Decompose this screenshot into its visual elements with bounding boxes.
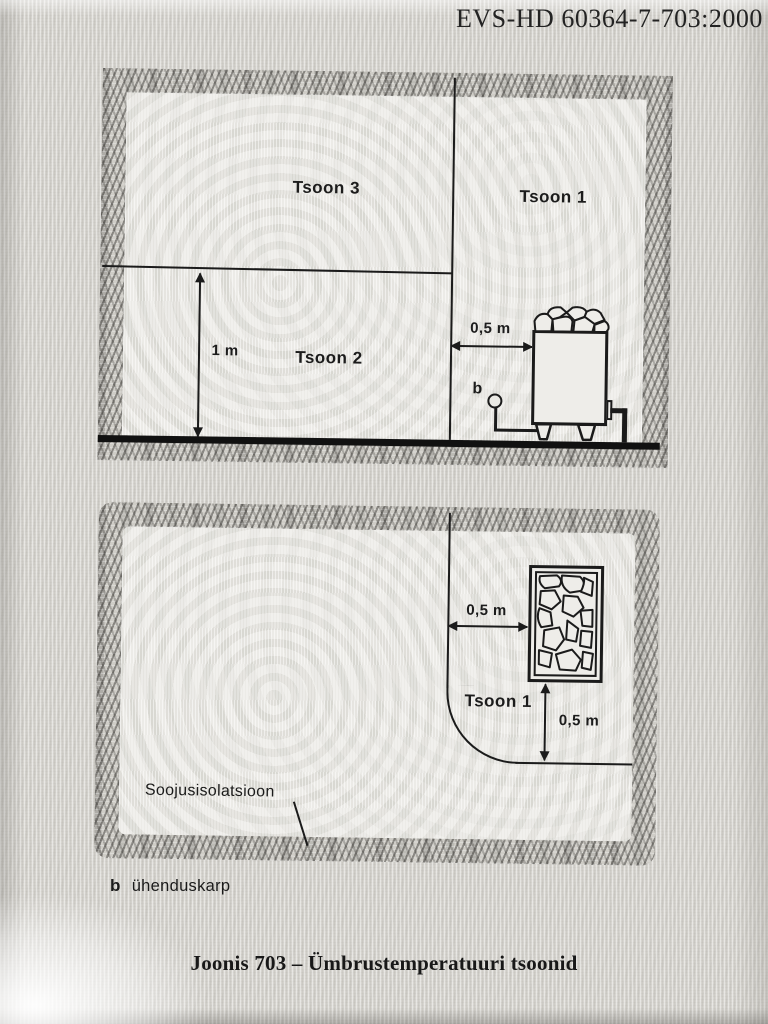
zone3-label: Tsoon 3	[292, 178, 360, 199]
zone2-label: Tsoon 2	[295, 348, 363, 369]
height-dimension-label: 1 m	[211, 342, 238, 359]
sauna-heater-body	[531, 330, 608, 426]
junction-box-symbol	[487, 393, 502, 408]
heater-plan-inner-frame	[534, 571, 598, 677]
junction-box-wire-vertical	[494, 407, 497, 430]
junction-box-marker-label: b	[472, 380, 482, 398]
sauna-heater-plan	[528, 565, 605, 683]
zone1-label-plan: Tsoon 1	[464, 691, 532, 712]
section-view-diagram: Tsoon 3 Tsoon 1 Tsoon 2 1 m 0,5 m b	[98, 68, 673, 468]
figure-caption: Joonis 703 – Ümbrustemperatuuri tsoonid	[0, 951, 768, 976]
heater-stones-icon	[532, 304, 610, 333]
heater-distance-label-section: 0,5 m	[470, 320, 511, 338]
legend-marker: b	[110, 876, 121, 895]
standard-reference: EVS-HD 60364-7-703:2000	[456, 4, 763, 34]
legend-description: ühenduskarp	[132, 877, 231, 895]
heater-legs-icon	[531, 423, 609, 442]
heater-distance-label-plan-left: 0,5 m	[466, 602, 507, 620]
heater-stones-plan-icon	[536, 573, 596, 675]
zone1-label-section: Tsoon 1	[519, 187, 587, 208]
scanned-standard-page: { "header": { "standard_ref": "EVS-HD 60…	[0, 0, 768, 1024]
insulation-label: Soojusisolatsioon	[145, 782, 275, 802]
legend: bühenduskarp	[110, 876, 230, 896]
heater-distance-label-plan-bottom: 0,5 m	[559, 712, 600, 730]
heater-conduit-vertical	[622, 408, 627, 442]
plan-view-diagram: 0,5 m Tsoon 1 0,5 m Soojusisolatsioon	[94, 502, 660, 866]
